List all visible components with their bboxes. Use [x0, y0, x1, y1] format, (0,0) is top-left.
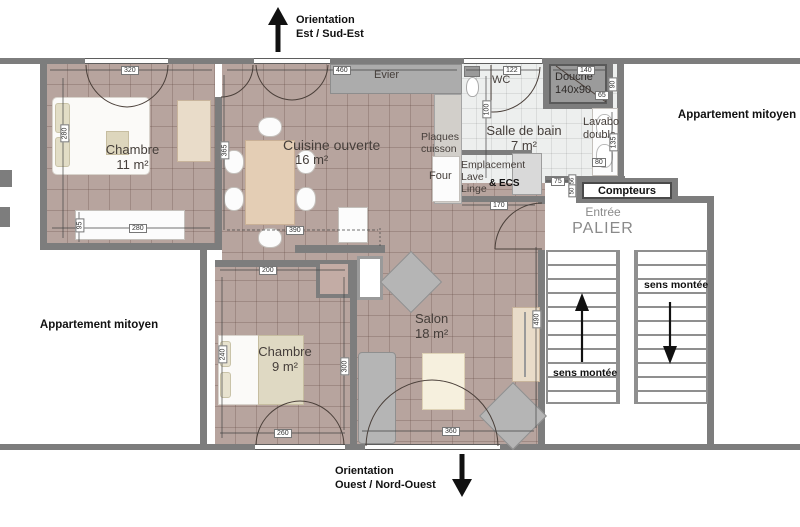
room-area: 18 m²	[415, 327, 448, 342]
dim-label: 50	[568, 185, 576, 198]
fixture-name: Plaques	[421, 131, 459, 143]
label-salon: Salon 18 m²	[415, 312, 448, 342]
label-neighbor-right: Appartement mitoyen	[666, 108, 800, 123]
label-salle-de-bain: Salle de bain 7 m²	[478, 124, 570, 154]
door-arc-salon	[432, 380, 498, 446]
label-neighbor-left: Appartement mitoyen	[28, 318, 170, 333]
dim-label: 80	[592, 158, 606, 167]
dim-label: 240	[218, 346, 227, 364]
dim-label: 460	[333, 66, 351, 75]
dim-label: 200	[259, 266, 277, 275]
label-compteurs: Compteurs	[582, 184, 672, 198]
room-name: Salle de bain	[478, 124, 570, 139]
dim-label: 260	[274, 429, 292, 438]
room-area: 16 m²	[283, 153, 380, 168]
room-size: 140x90	[555, 84, 593, 97]
door-arc-salon	[366, 380, 432, 446]
room-area: 9 m²	[240, 360, 330, 375]
dim-label: 135	[609, 134, 618, 152]
label-cuisine: Cuisine ouverte 16 m²	[283, 137, 380, 168]
arrow-head-stairs-down	[663, 346, 677, 364]
arrow-head-stairs-up	[575, 293, 589, 311]
dim-label: 170	[490, 201, 508, 210]
dim-label: 100	[482, 101, 491, 119]
dim-label: 75	[551, 177, 565, 186]
fixture-name: Lavabo	[583, 116, 619, 129]
arrow-head-south	[452, 479, 472, 497]
dim-label: 490	[532, 311, 541, 329]
label-entree-palier: Entrée PALIER	[548, 205, 658, 239]
floor-plan: Chambre 11 m² Cuisine ouverte 16 m² Cham…	[0, 0, 800, 527]
dim-label: 95	[75, 219, 84, 233]
dim-label: 65	[595, 91, 609, 100]
utility-text: Emplacement	[461, 159, 525, 171]
dim-label: 140	[577, 66, 595, 75]
dim-label: 122	[503, 66, 521, 75]
label-orientation-bottom: Orientation Ouest / Nord-Ouest	[335, 464, 436, 493]
orientation-text: Orientation	[296, 13, 364, 27]
label-chambre-11: Chambre 11 m²	[85, 143, 180, 173]
plan-linework	[0, 0, 800, 527]
arrow-head-north	[268, 7, 288, 25]
orientation-text: Est / Sud-Est	[296, 27, 364, 41]
room-name: Chambre	[240, 345, 330, 360]
label-evier: Evier	[374, 69, 399, 82]
door-arc-chambre9	[300, 401, 344, 445]
room-area: 7 m²	[478, 139, 570, 154]
dim-label: 390	[286, 226, 304, 235]
orientation-text: Orientation	[335, 464, 436, 478]
door-arc-chambre9	[256, 401, 300, 445]
room-name: Chambre	[85, 143, 180, 158]
room-name: Salon	[415, 312, 448, 327]
dim-label: 300	[340, 358, 349, 376]
label-sens-montee-left: sens montée	[553, 367, 617, 381]
room-area: 11 m²	[85, 158, 180, 173]
label-plaques-cuisson: Plaques cuisson	[421, 131, 459, 155]
label-chambre-9: Chambre 9 m²	[240, 345, 330, 375]
dim-label: 360	[442, 427, 460, 436]
entree-text: Entrée	[548, 205, 658, 219]
orientation-text: Ouest / Nord-Ouest	[335, 478, 436, 492]
label-four: Four	[429, 170, 452, 183]
dim-label: 280	[60, 125, 69, 143]
label-orientation-top: Orientation Est / Sud-Est	[296, 13, 364, 42]
label-ecs: & ECS	[489, 177, 520, 190]
label-wc: WC	[492, 74, 510, 87]
dim-lines-salon	[362, 247, 536, 431]
label-sens-montee-right: sens montée	[644, 279, 708, 293]
dim-label: 90	[608, 78, 617, 92]
fixture-name: cuisson	[421, 143, 459, 155]
palier-text: PALIER	[548, 219, 658, 238]
dim-label: 365	[220, 142, 229, 160]
dim-label: 280	[129, 224, 147, 233]
dim-label: 320	[121, 66, 139, 75]
room-name: Cuisine ouverte	[283, 137, 380, 153]
